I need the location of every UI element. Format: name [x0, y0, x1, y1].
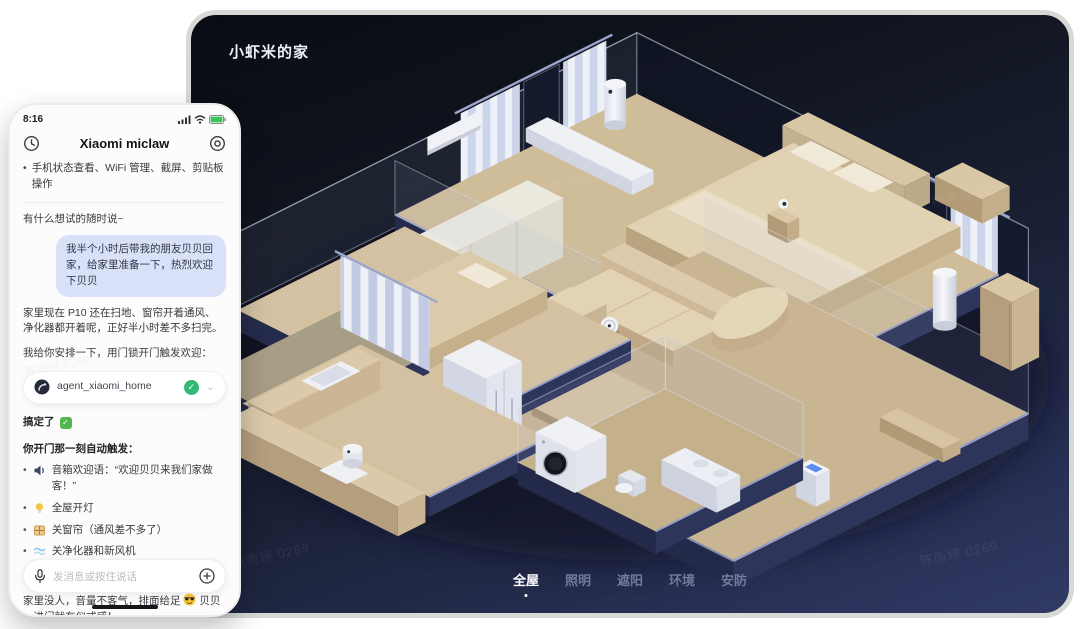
capabilities-note: • 手机状态查看、WiFi 管理、截屏、剪贴板操作 — [23, 161, 226, 193]
trigger-text: 关窗帘（通风差不多了） — [52, 523, 168, 539]
bullet: • — [23, 161, 27, 193]
tab-shading[interactable]: 遮阳 — [617, 570, 643, 589]
battery-icon — [209, 115, 226, 124]
home-indicator — [92, 605, 158, 609]
capabilities-text: 手机状态查看、WiFi 管理、截屏、剪贴板操作 — [32, 161, 226, 193]
air-purifier-living[interactable] — [933, 268, 957, 331]
user-message-bubble: 我半个小时后带我的朋友贝贝回家，给家里准备一下，热烈欢迎下贝贝 — [56, 235, 226, 296]
room-filter-nav: 全屋 照明 遮阳 环境 安防 — [513, 570, 747, 589]
mic-icon[interactable] — [34, 569, 46, 584]
wifi-icon — [194, 115, 206, 124]
air-purifier-bedroom[interactable] — [604, 79, 626, 130]
trigger-item: • 关窗帘（通风差不多了） — [23, 523, 226, 539]
bulb-icon — [33, 502, 46, 515]
check-emoji: ✓ — [60, 417, 72, 429]
side-cabinet — [980, 273, 1039, 371]
trigger-text: 关净化器和新风机 — [52, 544, 136, 560]
rice-cooker[interactable] — [343, 444, 363, 469]
trigger-text: 全屋开灯 — [52, 501, 94, 517]
trigger-item: • 全屋开灯 — [23, 501, 226, 517]
chevron-down-icon[interactable]: ⌄ — [206, 379, 215, 396]
floorplan-3d-scene[interactable] — [191, 15, 1069, 613]
status-time: 8:16 — [23, 114, 43, 125]
done-row: 搞定了 ✓ — [23, 415, 226, 431]
agent-icon — [34, 379, 50, 395]
bullet: • — [23, 501, 27, 516]
bullet: • — [23, 463, 27, 478]
tab-security[interactable]: 安防 — [721, 570, 747, 589]
plus-circle-icon[interactable] — [199, 568, 215, 584]
message-input-bar[interactable]: 发消息或按住说话 — [23, 559, 226, 593]
tab-lighting[interactable]: 照明 — [565, 570, 591, 589]
settings-icon[interactable] — [209, 135, 226, 152]
speaker-icon — [33, 464, 46, 477]
done-text: 搞定了 — [23, 415, 55, 431]
trigger-item: • 音箱欢迎语：“欢迎贝贝来我们家做客！” — [23, 463, 226, 495]
tab-environment[interactable]: 环境 — [669, 570, 695, 589]
bullet: • — [23, 544, 27, 559]
agent-tool-card[interactable]: agent_xiaomi_home ✓ ⌄ — [23, 371, 226, 404]
agent-name: agent_xiaomi_home — [57, 379, 177, 395]
check-circle-icon: ✓ — [184, 380, 199, 395]
home-3d-panel: 小虾米的家 陈雨婷 0269 陈雨婷 0269 陈雨婷 0269 陈雨婷 026… — [186, 10, 1074, 618]
window-icon — [33, 524, 46, 537]
history-icon[interactable] — [23, 135, 40, 152]
wind-icon — [33, 545, 46, 558]
chat-header: Xiaomi miclaw — [23, 135, 226, 152]
phone-overlay: 陈雨婷 0269 8:16 — [8, 103, 241, 617]
screenshot-root: 小虾米的家 陈雨婷 0269 陈雨婷 0269 陈雨婷 0269 陈雨婷 026… — [0, 0, 1080, 629]
trigger-text: 音箱欢迎语：“欢迎贝贝来我们家做客！” — [52, 463, 226, 495]
status-bar: 8:16 — [23, 114, 226, 125]
bullet: • — [23, 523, 27, 538]
sunglasses-emoji — [183, 593, 196, 606]
input-placeholder[interactable]: 发消息或按住说话 — [53, 569, 192, 584]
signal-icon — [178, 115, 191, 124]
assistant-reply-1: 家里现在 P10 还在扫地、窗帘开着通风、净化器都开着呢，正好半小时差不多扫完。 — [23, 306, 226, 338]
assistant-hint: 有什么想试的随时说~ — [23, 212, 226, 228]
tab-whole-house[interactable]: 全屋 — [513, 570, 539, 589]
chat-title: Xiaomi miclaw — [80, 136, 170, 151]
assistant-reply-2: 我给你安排一下，用门锁开门触发欢迎： — [23, 346, 226, 362]
trigger-item: • 关净化器和新风机 — [23, 544, 226, 560]
home-name-title: 小虾米的家 — [229, 41, 309, 62]
divider — [23, 202, 226, 203]
trigger-heading: 你开门那一刻自动触发： — [23, 442, 226, 458]
